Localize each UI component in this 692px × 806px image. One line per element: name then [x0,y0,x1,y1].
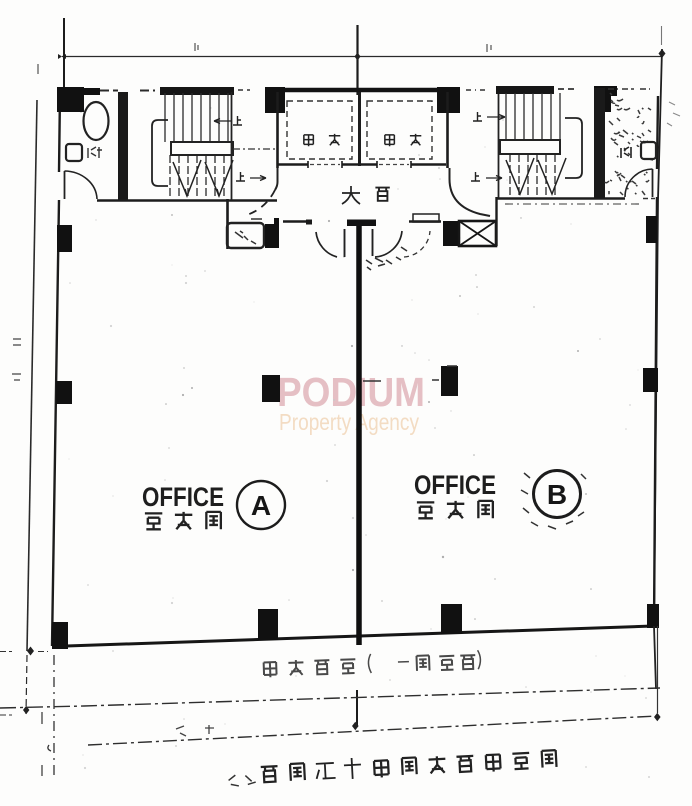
svg-text:B: B [547,479,567,510]
svg-text:Property Agency: Property Agency [279,409,419,435]
svg-text:OFFICE: OFFICE [142,482,224,512]
svg-text:OFFICE: OFFICE [414,470,496,500]
svg-text:A: A [251,490,271,521]
